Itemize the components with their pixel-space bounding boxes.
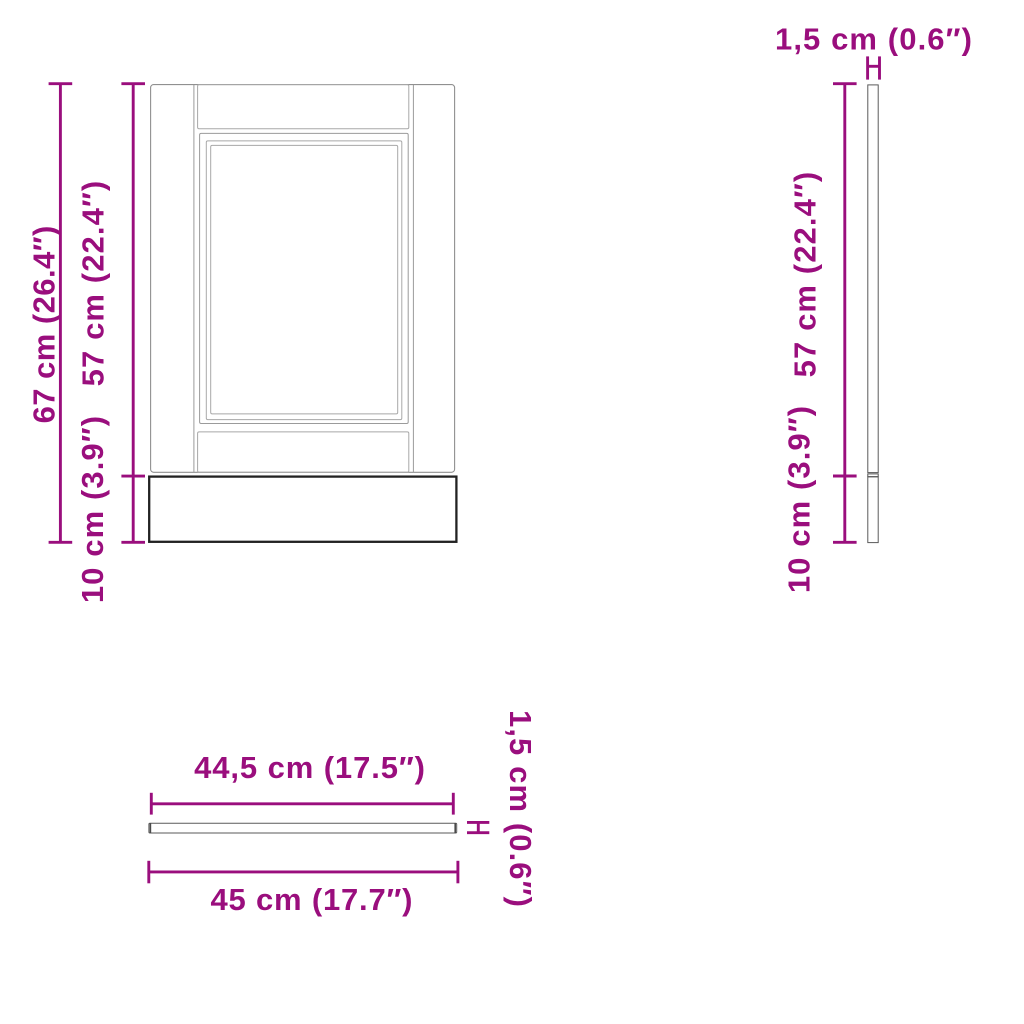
svg-text:44,5 cm (17.5″): 44,5 cm (17.5″) bbox=[194, 750, 426, 785]
svg-text:10 cm (3.9″): 10 cm (3.9″) bbox=[782, 405, 817, 593]
svg-text:57 cm (22.4″): 57 cm (22.4″) bbox=[75, 180, 110, 387]
svg-text:1,5 cm (0.6″): 1,5 cm (0.6″) bbox=[503, 710, 538, 908]
svg-text:1,5 cm (0.6″): 1,5 cm (0.6″) bbox=[775, 21, 973, 56]
svg-text:45 cm (17.7″): 45 cm (17.7″) bbox=[211, 882, 414, 917]
svg-text:57 cm (22.4″): 57 cm (22.4″) bbox=[788, 171, 823, 378]
svg-text:10 cm (3.9″): 10 cm (3.9″) bbox=[75, 415, 110, 603]
svg-text:67 cm (26.4″): 67 cm (26.4″) bbox=[27, 225, 62, 423]
